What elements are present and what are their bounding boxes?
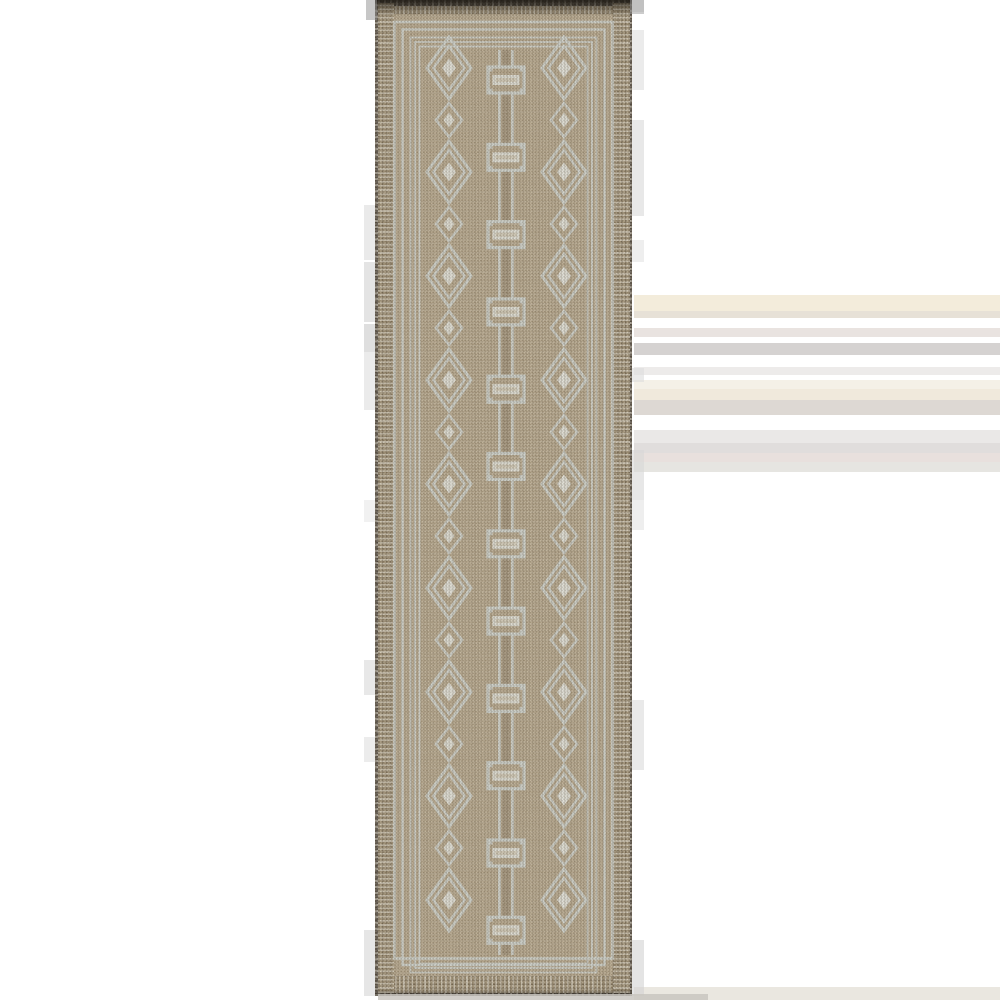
jpeg-artifact-band xyxy=(634,462,1000,472)
jpeg-artifact-block xyxy=(632,940,644,996)
jpeg-artifact-band xyxy=(634,343,1000,355)
jpeg-artifact-band xyxy=(634,443,1000,453)
jpeg-artifact-block xyxy=(364,205,375,260)
jpeg-artifact-block xyxy=(632,30,644,90)
jpeg-artifact-band xyxy=(634,295,1000,311)
jpeg-artifact-block xyxy=(632,368,644,382)
jpeg-artifact-block xyxy=(632,500,644,530)
jpeg-artifact-block xyxy=(364,262,375,322)
product-photo xyxy=(0,0,1000,1000)
jpeg-artifact-block xyxy=(632,700,644,770)
jpeg-artifact-band xyxy=(634,311,1000,318)
jpeg-artifact-band xyxy=(634,400,1000,415)
rug-drop-shadow xyxy=(378,994,708,1000)
jpeg-artifact-block xyxy=(364,737,375,762)
jpeg-artifact-band xyxy=(634,430,1000,443)
jpeg-artifact-block xyxy=(364,930,375,996)
jpeg-artifact-band xyxy=(634,328,1000,337)
jpeg-artifact-block xyxy=(364,324,375,352)
corner-shadow xyxy=(630,0,644,14)
jpeg-artifact-block xyxy=(364,352,375,410)
jpeg-artifact-band xyxy=(634,389,1000,400)
jpeg-artifact-block xyxy=(364,660,375,695)
runner-rug xyxy=(375,0,632,996)
jpeg-artifact-band xyxy=(634,453,1000,462)
jpeg-artifact-block xyxy=(632,450,644,500)
corner-shadow xyxy=(366,0,377,20)
jpeg-artifact-band xyxy=(634,367,1000,375)
jpeg-artifact-block xyxy=(632,240,644,262)
jpeg-artifact-band xyxy=(634,380,1000,389)
jpeg-artifact-block xyxy=(364,500,375,522)
jpeg-artifact-block xyxy=(632,120,644,216)
rug-pattern-svg xyxy=(375,0,632,996)
